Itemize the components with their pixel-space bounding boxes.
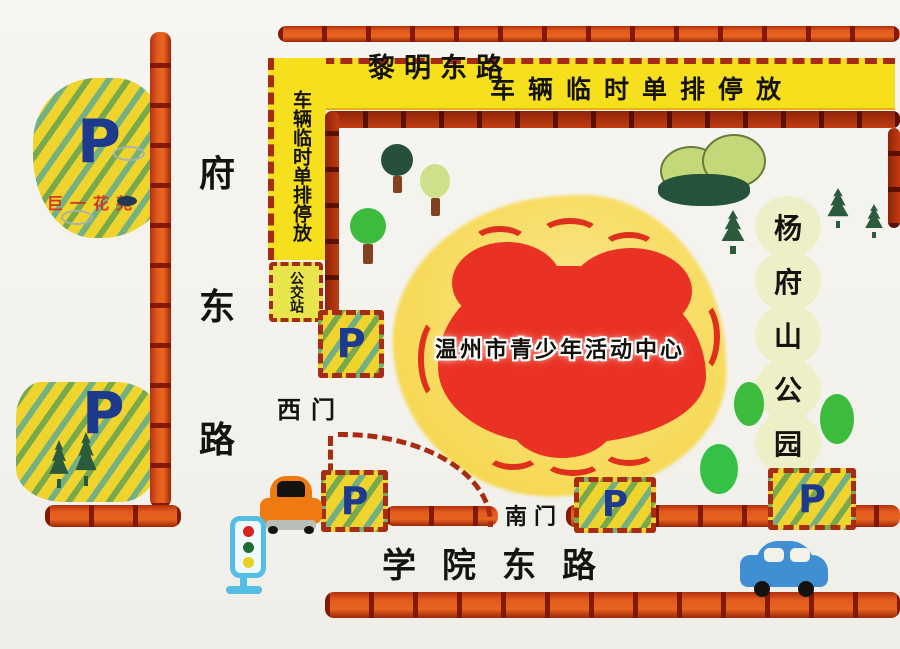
round-tree-icon <box>420 164 450 216</box>
west-gate-label: 西门 <box>277 390 345 425</box>
temporary-parking-banner-vertical-text: 车辆临时单排停放 <box>288 90 315 242</box>
parking-p-symbol: P <box>602 487 628 523</box>
park-char: 山 <box>755 304 821 366</box>
fudong-char-3: 路 <box>199 411 235 463</box>
road-label-xueyuan-east: 学院东路 <box>382 538 622 587</box>
fudong-char-2: 东 <box>199 278 235 330</box>
dash-arc <box>472 226 528 258</box>
yangfushan-park-label: 杨 府 山 公 园 <box>750 196 826 474</box>
center-block-wall-left <box>325 111 339 316</box>
dash-arc <box>602 438 656 466</box>
bus-station-label: 公交站 <box>286 271 306 313</box>
cloud-doodle-icon <box>61 210 93 225</box>
park-char: 公 <box>755 358 821 420</box>
pine-tree-icon <box>720 210 746 254</box>
center-block-wall-top <box>325 111 900 128</box>
road-label-liming-east: 黎明东路 <box>368 46 512 85</box>
parking-p-symbol: P <box>341 482 369 520</box>
bush-cloud-icon <box>658 134 764 206</box>
hand-drawn-map: 车辆临时单排停放 车辆临时单排停放 公交站 黎明东路 府 东 路 学院东路 西门… <box>0 0 900 649</box>
parking-p-juyi: P <box>77 112 121 172</box>
leafy-tree-icon <box>700 444 738 494</box>
dash-arc <box>540 218 600 250</box>
road-bottom-left-line <box>45 505 181 527</box>
center-block-wall-right <box>888 128 900 228</box>
parking-p-symbol: P <box>798 480 826 518</box>
temporary-parking-banner-text: 车辆临时单排停放 <box>490 70 794 106</box>
dash-arc <box>544 448 602 476</box>
south-gate-label: 南门 <box>505 499 563 531</box>
left-parking-area: P <box>16 382 158 502</box>
parking-sign-west-upper: P <box>318 310 384 378</box>
dark-scribble <box>117 196 137 206</box>
pine-tree-icon <box>864 204 884 238</box>
road-label-fudong: 府 东 路 <box>194 145 240 463</box>
traffic-light-icon <box>230 516 266 578</box>
parking-sign-south-east: P <box>768 468 856 530</box>
traffic-light-base <box>226 586 262 594</box>
cloud-doodle-icon <box>113 146 145 161</box>
park-char: 杨 <box>755 196 821 258</box>
orange-car-icon <box>260 476 322 534</box>
temporary-parking-banner-vertical: 车辆临时单排停放 <box>268 58 326 260</box>
blue-car-icon <box>740 541 828 597</box>
parking-sign-south-middle: P <box>574 477 656 533</box>
park-char: 府 <box>755 250 821 312</box>
road-fudong-line <box>150 32 171 508</box>
parking-p-symbol: P <box>336 324 365 364</box>
parking-sign-west-lower: P <box>321 470 388 532</box>
fudong-char-1: 府 <box>199 145 235 197</box>
leafy-tree-icon <box>820 394 854 444</box>
round-tree-icon <box>350 208 386 264</box>
temporary-parking-banner-horizontal: 车辆临时单排停放 <box>268 58 895 110</box>
round-tree-icon <box>381 144 413 193</box>
traffic-light-pole <box>240 573 247 587</box>
leafy-tree-icon <box>734 382 764 426</box>
activity-center-name: 温州市青少年活动中心 <box>428 332 692 364</box>
road-liming-east-line <box>278 26 900 42</box>
bus-station-box: 公交站 <box>269 262 323 322</box>
pine-tree-icon <box>826 188 850 228</box>
park-char: 园 <box>755 412 821 474</box>
dash-arc <box>486 440 540 470</box>
pine-tree-icon <box>48 440 70 488</box>
dash-arc <box>602 232 656 262</box>
pine-tree-icon <box>74 432 98 486</box>
